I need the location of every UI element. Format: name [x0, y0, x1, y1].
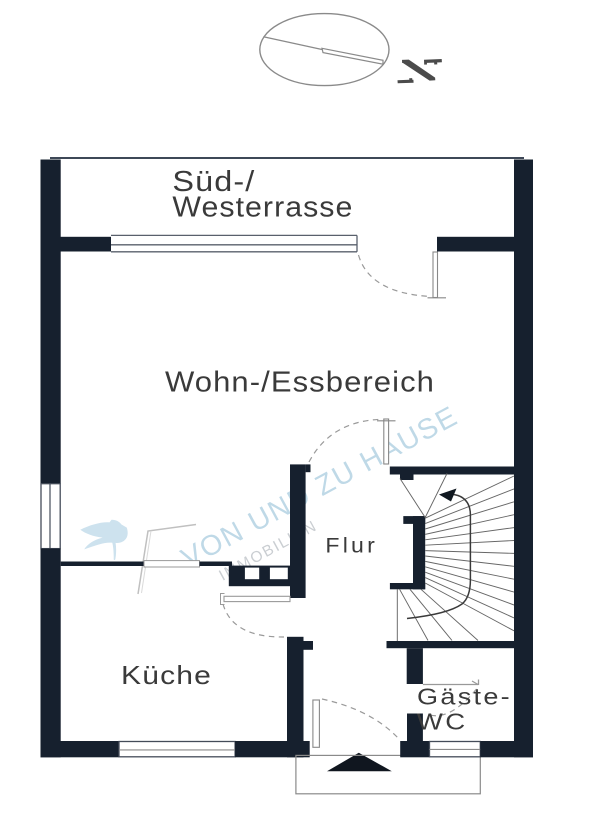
svg-text:Westerrasse: Westerrasse — [172, 192, 353, 224]
svg-text:WC: WC — [417, 709, 468, 735]
svg-text:Flur: Flur — [325, 534, 378, 558]
svg-text:Wohn-/Essbereich: Wohn-/Essbereich — [165, 367, 435, 399]
svg-text:Gäste-: Gäste- — [417, 684, 512, 710]
svg-text:Küche: Küche — [121, 660, 212, 690]
